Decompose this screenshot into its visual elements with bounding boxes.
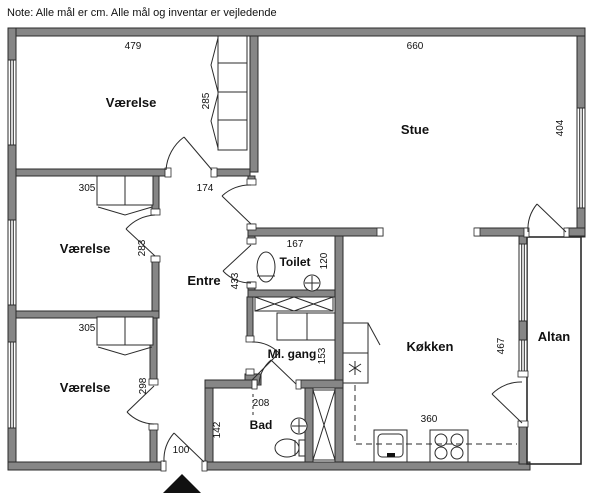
room-label-entre: Entre — [187, 273, 220, 288]
dim-bad-depth: 142 — [212, 421, 223, 438]
doors — [126, 137, 566, 462]
cabinet-under-toilet — [255, 297, 333, 311]
dim-vaerelse3-width: 305 — [79, 323, 96, 334]
dim-koekken-depth: 467 — [496, 337, 507, 354]
toilet-sink-icon — [304, 275, 320, 291]
wall-v2-right-bottom — [152, 256, 159, 312]
window-altan-1 — [519, 244, 527, 321]
wall-stue-bottom-left — [248, 228, 383, 236]
kitchen-stove-icon — [430, 430, 468, 462]
wall-v1-bottom-left — [16, 169, 166, 176]
dim-stue-depth: 404 — [555, 119, 566, 136]
kitchen-tall-cabinet — [343, 323, 380, 353]
kitchen-sink-icon — [374, 430, 407, 462]
wall-altan-bottom — [519, 424, 527, 464]
wall-kitchen-left — [335, 236, 343, 462]
bad-sink-icon — [291, 418, 307, 434]
floor-plan: Note: Alle mål er cm. Alle mål og invent… — [0, 0, 600, 498]
wall-divider-v1-stue — [250, 36, 258, 172]
wall-bad-top-left — [205, 380, 257, 388]
room-label-bad: Bad — [250, 418, 273, 432]
dim-vaerelse1-width: 479 — [125, 41, 142, 52]
room-label-toilet: Toilet — [279, 255, 310, 269]
window-left-3 — [8, 342, 16, 428]
wall-stue-bottom-mid — [475, 228, 527, 236]
room-label-vaerelse-1: Værelse — [106, 95, 157, 110]
wardrobe-vaerelse2 — [97, 176, 153, 215]
wall-toilet-bottom — [248, 290, 343, 297]
dim-entre-height: 433 — [230, 272, 241, 289]
window-left-2 — [8, 220, 16, 305]
door-bad — [259, 360, 296, 384]
room-label-vaerelse-2: Værelse — [60, 241, 111, 256]
room-label-vaerelse-3: Værelse — [60, 380, 111, 395]
toilet-wc-icon — [257, 252, 275, 282]
room-label-koekken: Køkken — [407, 339, 454, 354]
bad-wc-icon — [275, 439, 305, 457]
wall-top — [8, 28, 585, 36]
wall-bottom-left — [8, 462, 163, 470]
window-right-stue — [577, 108, 585, 208]
wall-v1-bottom-right — [212, 169, 250, 176]
door-kitchen-altan — [492, 382, 522, 423]
door-hall-stue — [222, 185, 251, 224]
dim-hall-width: 174 — [197, 183, 214, 194]
wall-stue-bottom-corner — [567, 228, 585, 236]
plan-note: Note: Alle mål er cm. Alle mål og invent… — [7, 7, 277, 19]
dim-vaerelse3-depth: 298 — [138, 377, 149, 394]
kitchen-freezer-icon — [343, 353, 368, 383]
wardrobe-vaerelse1 — [211, 36, 247, 150]
shaft-bad — [313, 390, 335, 460]
room-label-stue: Stue — [401, 122, 429, 137]
door-vaerelse1 — [166, 137, 212, 170]
dim-bad-width: 208 — [253, 398, 270, 409]
floor-plan-canvas: Note: Alle mål er cm. Alle mål og invent… — [0, 0, 600, 498]
balcony-outline — [527, 237, 581, 464]
dim-toilet-depth: 120 — [319, 252, 330, 269]
dim-mlgang-height: 153 — [317, 347, 328, 364]
wall-mlgang-left — [247, 297, 253, 341]
dim-stue-width: 660 — [407, 41, 424, 52]
dim-vaerelse2-width: 305 — [79, 183, 96, 194]
wall-bottom-mid — [205, 462, 530, 470]
dim-vaerelse1-depth: 285 — [201, 92, 212, 109]
entrance-arrow-icon — [163, 474, 201, 493]
wall-altan-pier-mid — [519, 321, 527, 340]
dim-koekken-width: 360 — [421, 414, 438, 425]
dim-entrance-door: 100 — [173, 445, 190, 456]
room-label-mlgang: Ml. gang — [268, 347, 317, 361]
dim-toilet-width: 167 — [287, 239, 304, 250]
wardrobe-mlgang — [277, 313, 335, 340]
wall-bad-top-right — [297, 380, 343, 388]
wardrobe-vaerelse3 — [97, 317, 153, 355]
door-stue-altan — [528, 204, 566, 232]
dim-vaerelse2-depth: 283 — [137, 239, 148, 256]
window-left-1 — [8, 60, 16, 145]
room-label-altan: Altan — [538, 329, 571, 344]
